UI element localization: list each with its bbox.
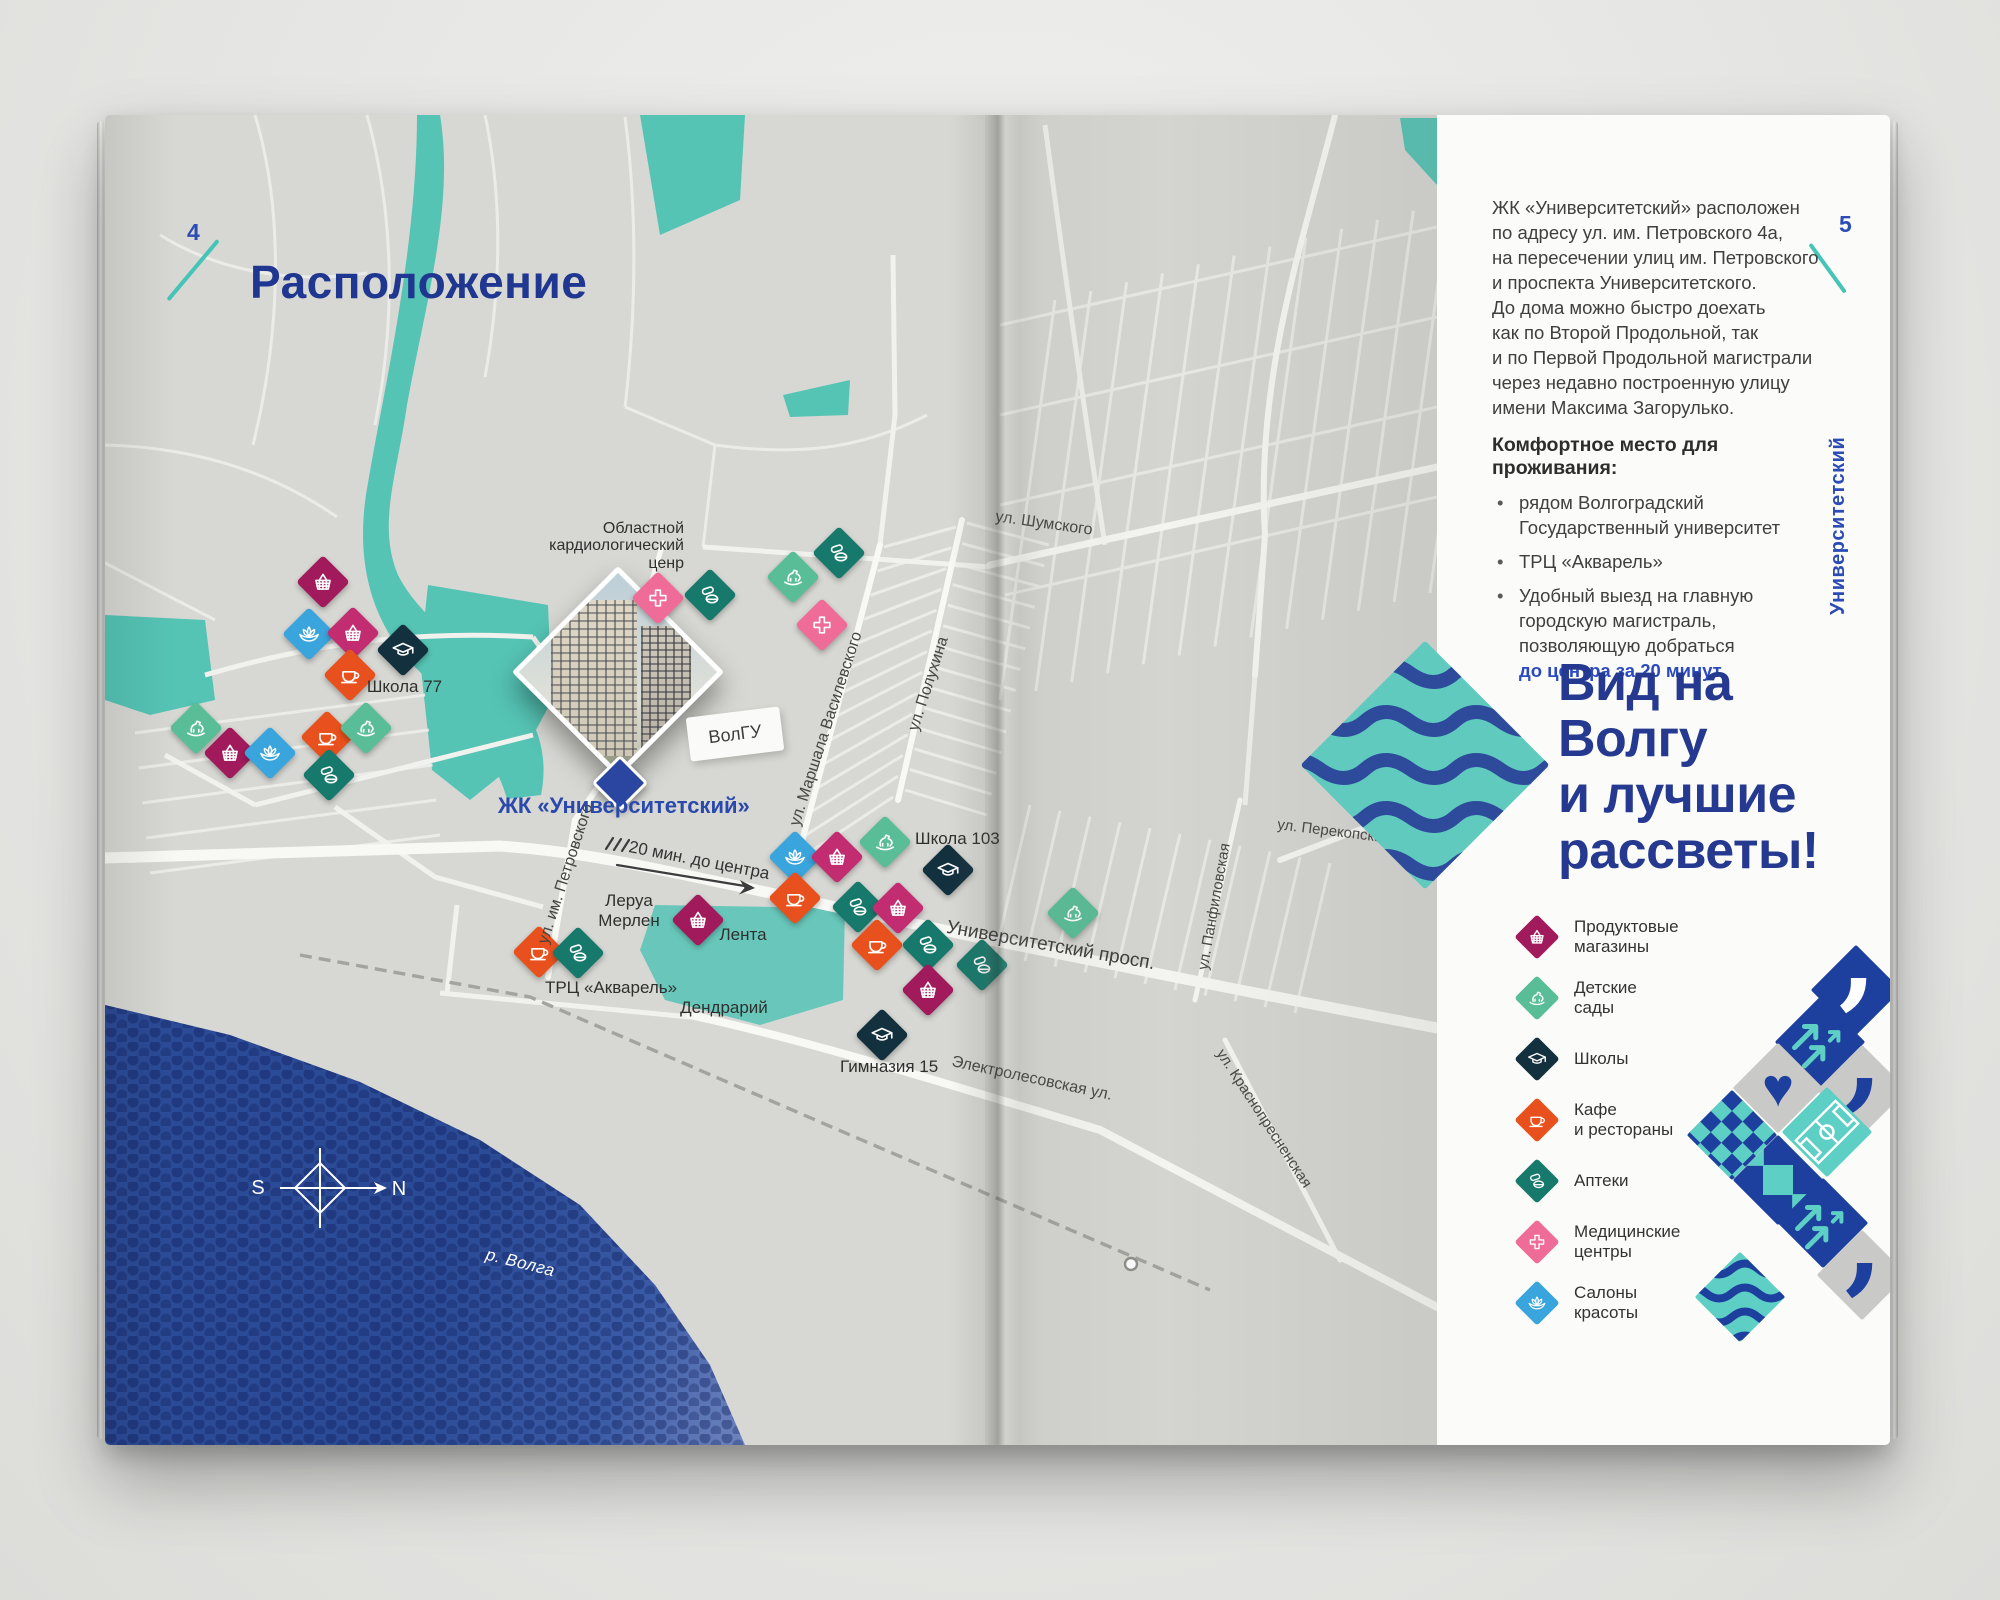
- poi-label-school77: Школа 77: [357, 677, 452, 697]
- pills-icon: [697, 582, 723, 608]
- legend-item-grocery-store: Продуктовыемагазины: [1514, 914, 1679, 960]
- cross-icon: [809, 612, 835, 638]
- basket-icon: [1526, 926, 1548, 948]
- legend-label: Школы: [1574, 1049, 1628, 1069]
- railway-station-dot: [1125, 1258, 1137, 1270]
- kindergarten-marker: [1514, 975, 1559, 1020]
- cafe-icon: [1526, 1109, 1548, 1131]
- legend-item-pharmacy: Аптеки: [1514, 1158, 1629, 1204]
- basket-icon: [885, 895, 911, 921]
- poi-label-akvarel: ТРЦ «Акварель»: [535, 978, 687, 998]
- basket-icon: [915, 977, 941, 1003]
- right-page-number: 5: [1839, 211, 1852, 238]
- school-marker: [1514, 1036, 1559, 1081]
- cross-icon: [645, 585, 671, 611]
- pharmacy-marker: [1514, 1158, 1559, 1203]
- legend-label: Аптеки: [1574, 1171, 1629, 1191]
- poi-label-dendrarium: Дендрарий: [663, 998, 785, 1018]
- legend-label: Салоныкрасоты: [1574, 1283, 1638, 1323]
- legend-item-kindergarten: Детскиесады: [1514, 975, 1637, 1021]
- basket-icon: [685, 907, 711, 933]
- poi-label-leroy: Леруа Мерлен: [583, 891, 675, 930]
- legend-item-beauty-salon: Салоныкрасоты: [1514, 1280, 1638, 1326]
- compass-south-label: S: [246, 1177, 270, 1200]
- school-icon: [1526, 1048, 1548, 1070]
- poi-label-school103: Школа 103: [915, 829, 1000, 849]
- basket-icon: [340, 620, 366, 646]
- intro-paragraph: ЖК «Университетский» расположенпо адресу…: [1492, 195, 1837, 420]
- horse-icon: [872, 829, 898, 855]
- school-icon: [869, 1022, 895, 1048]
- horse-icon: [183, 715, 209, 741]
- legend-item-school: Школы: [1514, 1036, 1628, 1082]
- basket-icon: [217, 740, 243, 766]
- lotus-icon: [1526, 1292, 1548, 1314]
- poi-label-cardiocenter: Областной кардиологический ценр: [504, 520, 684, 572]
- legend-label: Кафеи рестораны: [1574, 1100, 1673, 1140]
- legend-label: Продуктовыемагазины: [1574, 917, 1679, 957]
- cross-icon: [1526, 1231, 1548, 1253]
- pills-icon: [1526, 1170, 1548, 1192]
- cafe-icon: [314, 724, 340, 750]
- grocery-store-marker: [1514, 914, 1559, 959]
- comfort-heading: Комфортное место для проживания:: [1492, 434, 1837, 480]
- horse-icon: [1060, 900, 1086, 926]
- horse-icon: [1526, 987, 1548, 1009]
- compass-north-label: N: [387, 1178, 411, 1201]
- cafe-marker: [1514, 1097, 1559, 1142]
- beauty-salon-marker: [1514, 1280, 1559, 1325]
- pills-icon: [845, 894, 871, 920]
- comfort-bullet: рядом ВолгоградскийГосударственный униве…: [1492, 490, 1837, 540]
- medical-center-marker: [1514, 1219, 1559, 1264]
- comfort-bullet: ТРЦ «Акварель»: [1492, 549, 1837, 574]
- legend-item-medical-center: Медицинскиецентры: [1514, 1219, 1680, 1265]
- heart-glyph: ♥: [1762, 1057, 1794, 1119]
- pills-icon: [316, 762, 342, 788]
- legend-label: Детскиесады: [1574, 978, 1637, 1018]
- cafe-icon: [782, 885, 808, 911]
- basket-icon: [824, 844, 850, 870]
- lotus-icon: [257, 740, 283, 766]
- poi-label-gymnasium15: Гимназия 15: [840, 1057, 938, 1077]
- complex-name-label: ЖК «Университетский»: [498, 793, 738, 819]
- pills-icon: [969, 952, 995, 978]
- pills-icon: [565, 940, 591, 966]
- intro-copy-block: ЖК «Университетский» расположенпо адресу…: [1492, 195, 1837, 692]
- poi-label-lenta: Лента: [712, 925, 774, 945]
- lotus-icon: [782, 844, 808, 870]
- headline-view-volga: Вид наВолгуи лучшиерассветы!: [1558, 655, 1819, 879]
- location-map: S N р. Волга Областной кардиологический …: [105, 115, 1437, 1445]
- legend-label: Медицинскиецентры: [1574, 1222, 1680, 1262]
- school-icon: [390, 637, 416, 663]
- horse-icon: [780, 564, 806, 590]
- legend-item-cafe: Кафеи рестораны: [1514, 1097, 1673, 1143]
- horse-icon: [353, 715, 379, 741]
- page-title: Расположение: [250, 255, 587, 309]
- brochure-spread: S N р. Волга Областной кардиологический …: [105, 115, 1890, 1445]
- pills-icon: [915, 932, 941, 958]
- cafe-icon: [864, 932, 890, 958]
- left-page-number: 4: [187, 219, 200, 246]
- basket-icon: [310, 569, 336, 595]
- pills-icon: [826, 540, 852, 566]
- school-icon: [935, 857, 961, 883]
- lotus-icon: [296, 621, 322, 647]
